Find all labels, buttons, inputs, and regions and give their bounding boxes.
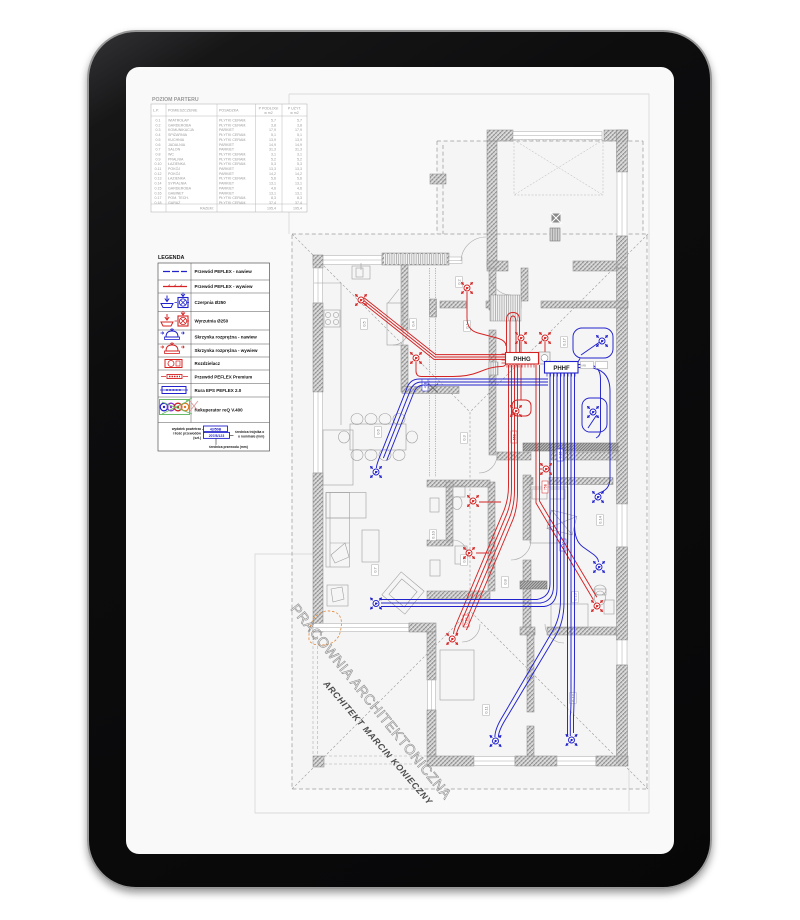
svg-text:13,9: 13,9 <box>269 137 276 141</box>
svg-text:L.P.: L.P. <box>153 108 159 112</box>
svg-text:o nominale (mm): o nominale (mm) <box>238 434 264 438</box>
svg-text:POM. TECH.: POM. TECH. <box>168 196 189 200</box>
svg-text:17,9: 17,9 <box>295 128 302 132</box>
svg-text:POSADZKA: POSADZKA <box>219 108 239 112</box>
svg-text:Wyrzutnia Ø250: Wyrzutnia Ø250 <box>194 318 228 323</box>
svg-text:LEGENDA: LEGENDA <box>158 255 184 261</box>
svg-text:PARKIET: PARKIET <box>219 171 235 175</box>
svg-text:13,1: 13,1 <box>269 191 276 195</box>
svg-text:PŁYTKI CERAM.: PŁYTKI CERAM. <box>219 137 246 141</box>
svg-text:75B: 75B <box>543 483 547 490</box>
svg-text:PARKIET: PARKIET <box>219 181 235 185</box>
svg-text:POKÓJ: POKÓJ <box>168 166 180 171</box>
svg-text:0.17: 0.17 <box>154 196 161 200</box>
svg-text:13,1: 13,1 <box>295 181 302 185</box>
svg-text:PHHF: PHHF <box>553 366 570 372</box>
svg-text:PARKIET: PARKIET <box>219 167 235 171</box>
svg-text:Rozdzielacz: Rozdzielacz <box>194 361 220 366</box>
svg-text:0.10: 0.10 <box>430 530 435 539</box>
svg-text:0.10: 0.10 <box>154 162 161 166</box>
svg-text:MB: MB <box>581 363 586 367</box>
svg-text:Przewód PEFLEX - wywiew: Przewód PEFLEX - wywiew <box>194 284 253 289</box>
svg-text:P UŻYT.: P UŻYT. <box>287 105 301 110</box>
svg-text:5,7: 5,7 <box>297 118 302 122</box>
svg-text:14,9: 14,9 <box>295 142 302 146</box>
svg-text:3,8: 3,8 <box>271 123 276 127</box>
svg-text:i ilość przewodów: i ilość przewodów <box>172 431 201 435</box>
svg-text:31,3: 31,3 <box>295 147 302 151</box>
svg-text:SYPIALNIA: SYPIALNIA <box>168 181 187 185</box>
svg-text:0.11: 0.11 <box>154 167 161 171</box>
svg-text:PŁYTKI CERAM.: PŁYTKI CERAM. <box>219 196 246 200</box>
svg-text:0.1: 0.1 <box>155 118 160 122</box>
svg-text:JADALNIA: JADALNIA <box>168 142 186 146</box>
svg-text:wydatek powietrza: wydatek powietrza <box>170 427 200 431</box>
svg-text:(szt.): (szt.) <box>193 435 201 439</box>
svg-text:0.4: 0.4 <box>410 320 415 326</box>
svg-text:0.6: 0.6 <box>375 428 380 434</box>
svg-text:w m2: w m2 <box>290 111 299 115</box>
svg-text:WC: WC <box>168 152 174 156</box>
svg-text:PŁYTKI CERAM.: PŁYTKI CERAM. <box>219 200 246 204</box>
svg-text:ŁAZIENKA: ŁAZIENKA <box>168 176 186 180</box>
svg-text:PŁYTKI CERAM.: PŁYTKI CERAM. <box>219 162 246 166</box>
svg-text:średnica trójnika o: średnica trójnika o <box>235 430 264 434</box>
svg-text:0.12: 0.12 <box>154 171 161 175</box>
svg-text:5,2: 5,2 <box>297 157 302 161</box>
svg-text:0.3: 0.3 <box>461 434 466 440</box>
svg-text:0.4: 0.4 <box>155 133 160 137</box>
svg-text:PŁYTKI CERAM.: PŁYTKI CERAM. <box>219 176 246 180</box>
svg-text:POKÓJ: POKÓJ <box>168 170 180 175</box>
svg-text:POZIOM PARTERU: POZIOM PARTERU <box>152 97 199 103</box>
svg-text:PRALNIA: PRALNIA <box>168 157 184 161</box>
svg-text:PŁYTKI CERAM.: PŁYTKI CERAM. <box>219 118 246 122</box>
svg-text:SALON: SALON <box>168 147 181 151</box>
svg-text:195,4: 195,4 <box>293 206 302 210</box>
svg-text:0.2: 0.2 <box>456 278 461 284</box>
svg-text:37,4: 37,4 <box>269 200 276 204</box>
svg-text:31,3: 31,3 <box>269 147 276 151</box>
svg-text:GARDEROBA: GARDEROBA <box>168 123 192 127</box>
svg-text:4,6: 4,6 <box>271 186 276 190</box>
svg-text:5,6: 5,6 <box>271 176 276 180</box>
svg-text:0.15: 0.15 <box>154 186 161 190</box>
svg-text:14,9: 14,9 <box>269 142 276 146</box>
svg-text:0.8: 0.8 <box>502 578 507 584</box>
svg-text:PŁYTKI CERAM.: PŁYTKI CERAM. <box>219 157 246 161</box>
svg-text:0.2: 0.2 <box>155 123 160 127</box>
svg-text:8,3: 8,3 <box>271 196 276 200</box>
svg-text:PŁYTKI CERAM.: PŁYTKI CERAM. <box>219 152 246 156</box>
svg-text:0.13: 0.13 <box>572 592 577 601</box>
svg-text:Rekuperator reQ V.400: Rekuperator reQ V.400 <box>194 407 243 412</box>
svg-text:13,9: 13,9 <box>295 137 302 141</box>
svg-text:13,1: 13,1 <box>295 191 302 195</box>
svg-text:PŁYTKI CERAM.: PŁYTKI CERAM. <box>219 123 246 127</box>
svg-text:0.7: 0.7 <box>155 147 160 151</box>
svg-text:5,7: 5,7 <box>271 118 276 122</box>
svg-text:5,3: 5,3 <box>271 162 276 166</box>
svg-text:Rura EPS PEFLEX 2.0: Rura EPS PEFLEX 2.0 <box>194 387 241 392</box>
svg-text:0.3: 0.3 <box>155 128 160 132</box>
svg-text:średnica przewodu (mm): średnica przewodu (mm) <box>209 445 248 449</box>
svg-text:PARKIET: PARKIET <box>219 186 235 190</box>
svg-text:3,1: 3,1 <box>271 152 276 156</box>
svg-text:Skrzynka rozprężna - wywiew: Skrzynka rozprężna - wywiew <box>194 348 258 353</box>
svg-text:195,4: 195,4 <box>267 206 276 210</box>
svg-text:P PODŁOGI: P PODŁOGI <box>258 106 278 110</box>
svg-text:5,6: 5,6 <box>297 176 302 180</box>
svg-text:17,9: 17,9 <box>269 128 276 132</box>
svg-text:ŁAZIENKA: ŁAZIENKA <box>168 162 186 166</box>
svg-text:4,6: 4,6 <box>297 186 302 190</box>
svg-text:RAZEM:: RAZEM: <box>200 206 214 210</box>
svg-text:0.8: 0.8 <box>155 152 160 156</box>
svg-text:37,4: 37,4 <box>295 200 302 204</box>
svg-text:KUCHNIA: KUCHNIA <box>168 137 185 141</box>
svg-text:PARKIET: PARKIET <box>219 147 235 151</box>
svg-text:3,8: 3,8 <box>297 123 302 127</box>
svg-text:0.5: 0.5 <box>361 320 366 326</box>
svg-text:14,2: 14,2 <box>269 171 276 175</box>
svg-text:0.7: 0.7 <box>372 566 377 572</box>
svg-text:WIATROŁAP: WIATROŁAP <box>168 118 190 122</box>
svg-text:0.9: 0.9 <box>155 157 160 161</box>
svg-text:KOMUNIKACJA: KOMUNIKACJA <box>168 128 195 132</box>
svg-text:0.5: 0.5 <box>155 137 160 141</box>
svg-text:43/50B: 43/50B <box>209 427 221 431</box>
svg-text:PHHG: PHHG <box>513 357 531 363</box>
svg-text:5,2: 5,2 <box>271 157 276 161</box>
svg-text:0.18: 0.18 <box>154 200 161 204</box>
svg-text:GARAŻ: GARAŻ <box>168 199 181 204</box>
svg-text:5,1: 5,1 <box>271 133 276 137</box>
svg-text:0.14: 0.14 <box>154 181 161 185</box>
svg-text:Czerpnia Ø250: Czerpnia Ø250 <box>194 299 226 304</box>
svg-text:0.11: 0.11 <box>483 705 488 713</box>
svg-text:GABINET: GABINET <box>168 191 185 195</box>
svg-text:13,3: 13,3 <box>269 167 276 171</box>
svg-text:3,1: 3,1 <box>297 152 302 156</box>
svg-text:w m2: w m2 <box>264 111 273 115</box>
svg-text:0.14: 0.14 <box>597 515 602 524</box>
svg-text:13,3: 13,3 <box>295 167 302 171</box>
svg-text:SPIŻARNIA: SPIŻARNIA <box>168 132 188 137</box>
svg-text:Skrzynka rozprężna - nawiew: Skrzynka rozprężna - nawiew <box>194 334 257 339</box>
svg-text:PARKIET: PARKIET <box>219 128 235 132</box>
svg-text:14,2: 14,2 <box>295 171 302 175</box>
svg-text:5,1: 5,1 <box>297 133 302 137</box>
svg-text:13,1: 13,1 <box>269 181 276 185</box>
svg-text:Przewód PEFLEX - nawiew: Przewód PEFLEX - nawiew <box>194 269 252 274</box>
svg-text:PARKIET: PARKIET <box>219 191 235 195</box>
svg-text:0.17: 0.17 <box>561 337 566 346</box>
svg-text:0.13: 0.13 <box>154 176 161 180</box>
svg-text:5,3: 5,3 <box>297 162 302 166</box>
svg-text:Przewód PEFLEX Premium: Przewód PEFLEX Premium <box>194 374 252 379</box>
svg-text:PARKIET: PARKIET <box>219 142 235 146</box>
svg-text:0.16: 0.16 <box>154 191 161 195</box>
svg-text:0.6: 0.6 <box>155 142 160 146</box>
svg-text:GARDEROBA: GARDEROBA <box>168 186 192 190</box>
svg-text:POMIESZCZENIE: POMIESZCZENIE <box>168 108 198 112</box>
svg-text:8,3: 8,3 <box>297 196 302 200</box>
svg-text:PŁYTKI CERAM.: PŁYTKI CERAM. <box>219 133 246 137</box>
svg-text:207/8/123: 207/8/123 <box>208 434 224 438</box>
